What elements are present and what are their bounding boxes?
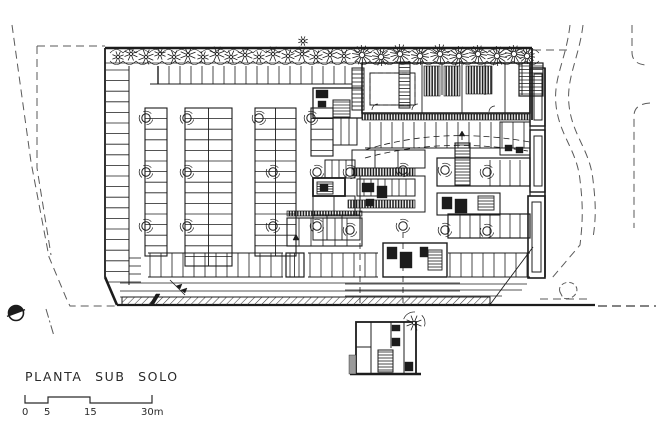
scale-bar: [25, 395, 152, 403]
tree-row: [110, 36, 539, 66]
scale-label-5: 5: [44, 407, 50, 418]
floor-plan-drawing: PLANTA SUB SOLO 0 5 15 30m: [0, 0, 660, 440]
detached-annex: [349, 312, 425, 374]
north-arrow-icon: [7, 305, 25, 320]
scale-label-30m: 30m: [141, 407, 163, 418]
ramps-and-lanes: [120, 234, 533, 306]
title-block: PLANTA SUB SOLO 0 5 15 30m: [22, 369, 179, 418]
scale-label-0: 0: [22, 407, 28, 418]
plan-title: PLANTA SUB SOLO: [25, 369, 179, 384]
core-rooms: [313, 62, 543, 277]
scale-label-15: 15: [84, 407, 97, 418]
floor-plan-sheet: PLANTA SUB SOLO 0 5 15 30m: [0, 0, 660, 440]
